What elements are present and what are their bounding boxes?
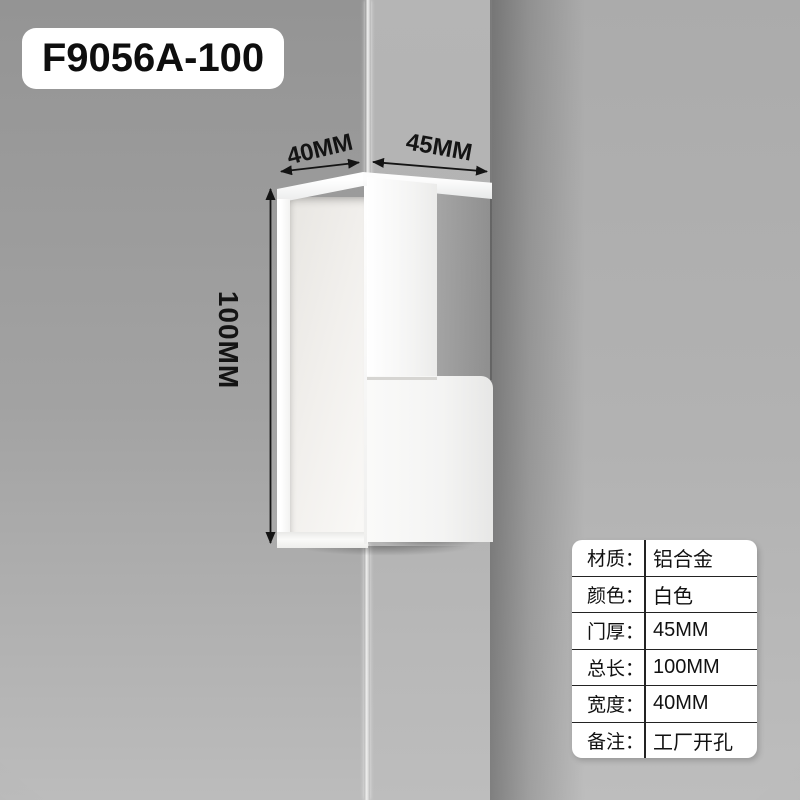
handle-step-block [367,376,493,542]
spec-row-remark: 备注： 工厂开孔 [572,723,757,759]
spec-table-card: 材质： 铝合金 颜色： 白色 门厚： 45MM 总长： 100MM 宽度： 40… [572,540,757,758]
product-model-text: F9056A-100 [42,36,264,81]
handle-corner-highlight [364,186,367,544]
spec-value: 45MM [644,619,757,642]
spec-label: 总长： [572,654,644,681]
product-model-badge: F9056A-100 [22,28,284,89]
handle-front-panel [367,177,437,378]
handle-frame-bottom-rail [277,532,368,548]
spec-column-divider [644,540,646,758]
spec-value: 100MM [644,656,757,679]
handle-cast-shadow [437,184,492,380]
spec-row-total-length: 总长： 100MM [572,650,757,687]
spec-label: 宽度： [572,690,644,717]
handle-frame-interior [290,197,367,534]
product-image: 40MM 45MM 100MM F9056A-100 材质： 铝合金 颜色： 白… [0,0,800,800]
spec-row-door-thickness: 门厚： 45MM [572,613,757,650]
handle-step-seam-line [367,377,437,380]
spec-row-material: 材质： 铝合金 [572,540,757,577]
spec-label: 备注： [572,727,644,754]
door-edge-shadow [490,0,585,800]
handle-frame-left-rail [277,199,290,548]
step-block-drop-shadow [367,541,493,551]
spec-label: 颜色： [572,581,644,608]
spec-value: 铝合金 [644,543,757,572]
spec-label: 门厚： [572,617,644,644]
door-seam-highlight-top [365,0,371,176]
spec-value: 40MM [644,692,757,715]
spec-label: 材质： [572,544,644,571]
spec-value: 工厂开孔 [644,726,757,755]
dim-label-100mm: 100MM [213,279,243,401]
spec-value: 白色 [644,580,757,609]
door-seam-highlight-bottom [364,544,370,800]
spec-row-color: 颜色： 白色 [572,577,757,614]
spec-row-width: 宽度： 40MM [572,686,757,723]
